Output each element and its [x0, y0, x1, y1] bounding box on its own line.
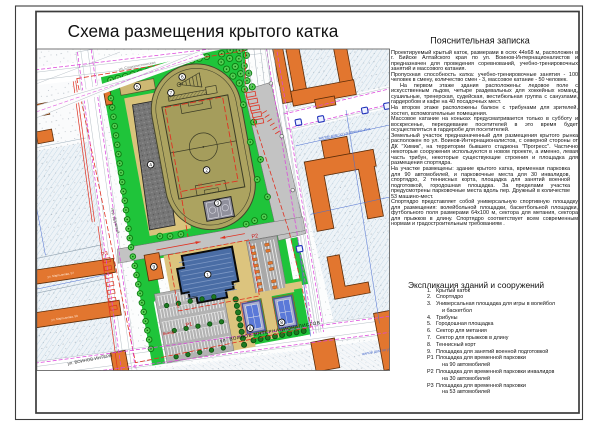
svg-text:Р1: Р1	[185, 322, 193, 329]
svg-text:Р3: Р3	[101, 251, 109, 258]
svg-text:Схема размещения крытого катка: Схема размещения крытого катка	[68, 21, 339, 41]
svg-text:Пояснительная записка: Пояснительная записка	[430, 36, 530, 46]
svg-text:Р2: Р2	[251, 233, 259, 240]
